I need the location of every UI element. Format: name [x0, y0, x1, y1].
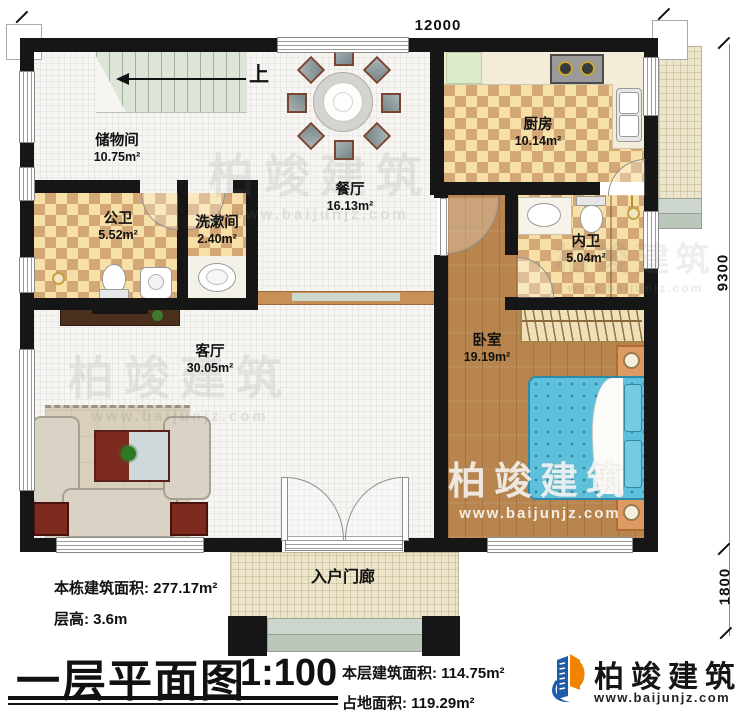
dining-table-center — [333, 92, 353, 112]
window-left-bath — [20, 258, 34, 292]
dim-tick-top-right — [657, 8, 670, 21]
wall-bottom-left-2 — [203, 538, 282, 552]
footprint-area-text: 占地面积: 119.29m² — [342, 692, 475, 713]
wall-bottom-left — [20, 538, 57, 552]
wall-top-right — [408, 38, 658, 52]
floor-plan-canvas: 12000 9300 1800 上 — [0, 0, 750, 718]
stove-burner — [580, 61, 595, 76]
wardrobe-rod — [522, 320, 642, 322]
nightstand-lamp — [623, 504, 640, 521]
dining-chair — [287, 93, 307, 113]
window-top-dining — [278, 38, 408, 52]
wall-bedroom-left-top — [434, 182, 448, 198]
washroom-sink-basin — [206, 269, 228, 285]
room-label-dining: 餐厅 16.13m² — [305, 181, 395, 215]
building-total-area-text: 本栋建筑面积: 277.17m² — [54, 577, 217, 598]
kitchen-prep-board — [446, 52, 482, 84]
wall-top-left — [20, 38, 278, 52]
wall-kitchen-left — [430, 38, 444, 195]
wall-bath-bottom — [20, 298, 258, 310]
wall-inner-bath-left — [505, 195, 518, 255]
dim-top-label: 12000 — [405, 17, 471, 34]
wall-right — [644, 38, 658, 58]
dining-chair — [381, 93, 401, 113]
room-label-living: 客厅 30.05m² — [165, 343, 255, 377]
side-table — [170, 502, 208, 536]
wall-left — [20, 200, 34, 258]
shower-head — [627, 207, 640, 220]
window-left-storage-2 — [20, 168, 34, 200]
kitchen-sink-basin — [619, 92, 639, 114]
stairs-direction-line — [128, 78, 246, 80]
title-rule-thin — [8, 703, 338, 705]
coffee-table-plant — [121, 446, 136, 461]
room-label-storage: 储物间 10.75m² — [72, 132, 162, 166]
stairs-up-label: 上 — [249, 58, 269, 87]
entry-door-leaf-right — [402, 477, 409, 541]
dim-tick-top-left — [15, 11, 28, 24]
wall-kitchen-bottom — [430, 182, 600, 195]
bed-duvet-fold — [592, 378, 623, 494]
window-kitchen-east — [644, 58, 658, 115]
window-bedroom-south — [488, 538, 632, 552]
side-terrace-step-1 — [658, 198, 702, 214]
porch-step-2 — [267, 634, 424, 652]
room-label-porch: 入户门廊 — [298, 568, 388, 588]
dining-chair — [334, 140, 354, 160]
wall-left — [20, 38, 34, 72]
company-logo-website: www.baijunjz.com — [594, 690, 730, 705]
wall-inner-bath-bottom — [505, 297, 658, 310]
floor-drain — [52, 272, 65, 285]
room-label-public-bath: 公卫 5.52m² — [78, 210, 158, 244]
company-logo: 柏竣建筑 www.baijunjz.com — [544, 648, 744, 710]
washing-machine-door — [148, 274, 164, 290]
window-left-storage — [20, 72, 34, 142]
room-label-kitchen: 厨房 10.14m² — [493, 116, 583, 150]
side-table — [33, 502, 69, 536]
floor-height-text: 层高: 3.6m — [54, 608, 127, 629]
threshold-panel — [292, 293, 400, 301]
console-plant — [152, 310, 163, 321]
window-inner-bath-east — [644, 212, 658, 268]
company-logo-icon — [544, 650, 590, 706]
wall-bath-top — [20, 180, 140, 193]
bed-pillow — [624, 384, 642, 432]
dim-right-upper-label: 9300 — [715, 242, 732, 304]
toilet-inner — [580, 205, 603, 233]
dim-tick-right-bottom — [719, 627, 732, 640]
room-label-washroom: 洗漱间 2.40m² — [177, 214, 257, 248]
dim-right-lower-label: 1800 — [717, 558, 734, 616]
side-terrace-step-2 — [658, 213, 702, 229]
room-label-bedroom: 卧室 19.19m² — [442, 332, 532, 366]
wall-bottom-mid — [404, 538, 488, 552]
wall-left — [20, 142, 34, 168]
wall-bedroom-left — [434, 255, 448, 538]
wall-right — [644, 115, 658, 212]
window-left-living — [20, 350, 34, 490]
title-rule-thick — [8, 696, 338, 700]
kitchen-sink-basin — [619, 115, 639, 137]
wall-bath-top-post — [177, 180, 188, 193]
entry-door-leaf-left — [281, 477, 288, 541]
plan-scale: 1:100 — [240, 652, 337, 695]
stairs-direction-arrowhead — [116, 73, 129, 85]
bed-pillow — [624, 440, 642, 488]
porch-pillar-right — [422, 616, 460, 656]
company-logo-icon-svg — [544, 650, 590, 706]
stove-burner — [558, 61, 573, 76]
wall-right — [644, 268, 658, 552]
sofa-bottom — [62, 488, 178, 538]
door-leaf-bedroom — [440, 198, 447, 256]
inner-bath-sink — [527, 203, 561, 227]
room-label-inner-bath: 内卫 5.04m² — [546, 233, 626, 267]
side-terrace — [658, 46, 702, 200]
window-living-south — [57, 538, 203, 552]
nightstand-lamp — [623, 352, 640, 369]
floor-area-text: 本层建筑面积: 114.75m² — [342, 662, 505, 683]
armchair-right — [163, 416, 211, 500]
dim-line-right — [729, 44, 730, 636]
